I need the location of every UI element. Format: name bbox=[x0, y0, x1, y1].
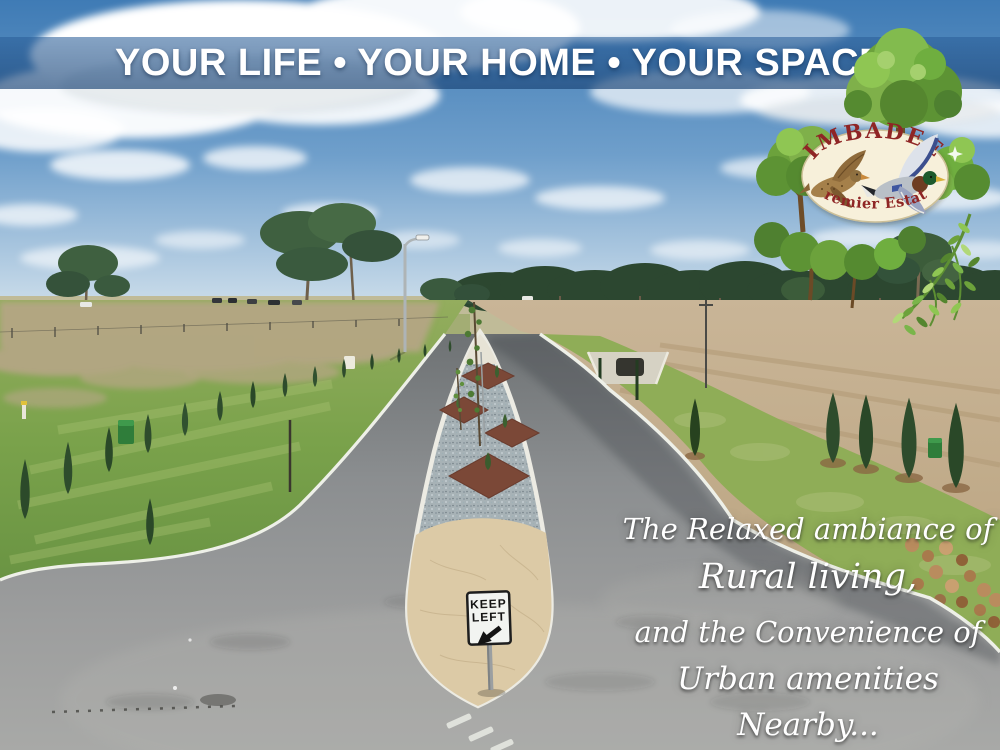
tagline-line-4: Urban amenities Nearby... bbox=[612, 656, 1000, 748]
tagline-line-1: The Relaxed ambiance of bbox=[612, 506, 1000, 552]
estate-marketing-image: KEEP LEFT YOUR LIFE • YOUR HOME • YOUR S… bbox=[0, 0, 1000, 750]
tagline-line-3: and the Convenience of bbox=[612, 608, 1000, 656]
tagline-line-2: Rural living, bbox=[612, 552, 1000, 602]
tagline: The Relaxed ambiance of Rural living, an… bbox=[612, 506, 1000, 748]
logo-oval: BIMBADEEN bbox=[0, 0, 949, 222]
